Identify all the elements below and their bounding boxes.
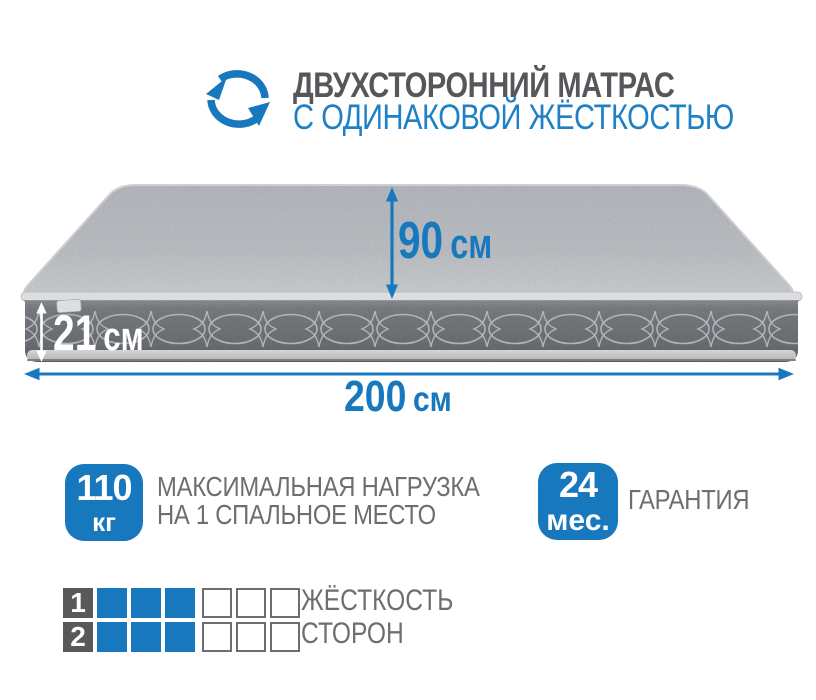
dimension-width-unit: см xyxy=(413,380,452,419)
dimension-width-value: 200 xyxy=(344,372,406,421)
max-load-label: МАКСИМАЛЬНАЯ НАГРУЗКА НА 1 СПАЛЬНОЕ МЕСТ… xyxy=(157,473,480,529)
dimension-depth-label: 90см xyxy=(398,215,492,267)
hardness-cell-filled xyxy=(165,622,195,652)
warranty-value: 24 xyxy=(559,467,597,503)
max-load-label-line1: МАКСИМАЛЬНАЯ НАГРУЗКА xyxy=(157,473,480,501)
hardness-label: ЖЁСТКОСТЬ СТОРОН xyxy=(301,584,453,650)
hardness-cell-filled xyxy=(131,588,161,618)
page-subtitle: С ОДИНАКОВОЙ ЖЁСТКОСТЬЮ xyxy=(293,100,734,135)
hardness-side-number: 2 xyxy=(63,622,93,652)
hardness-side-number: 1 xyxy=(63,588,93,618)
max-load-unit: кг xyxy=(92,509,116,535)
hardness-label-line2: СТОРОН xyxy=(301,617,453,650)
hardness-row: 1 xyxy=(63,588,300,618)
dimension-height-label: 21см xyxy=(53,308,144,358)
mattress-piping xyxy=(21,292,802,301)
dimension-depth-unit: см xyxy=(450,220,492,267)
hardness-cell-empty xyxy=(236,588,266,618)
hardness-cell-empty xyxy=(270,588,300,618)
mattress-image xyxy=(0,160,816,410)
hardness-cell-empty xyxy=(236,622,266,652)
hardness-label-line1: ЖЁСТКОСТЬ xyxy=(301,584,453,617)
hardness-cell-filled xyxy=(97,622,127,652)
hardness-cell-filled xyxy=(131,622,161,652)
dimension-depth-value: 90 xyxy=(398,212,443,270)
max-load-badge: 110 кг xyxy=(65,464,143,541)
mattress-infographic: ДВУХСТОРОННИЙ МАТРАС С ОДИНАКОВОЙ ЖЁСТКО… xyxy=(0,0,816,700)
warranty-label-text: ГАРАНТИЯ xyxy=(628,486,749,514)
max-load-value: 110 xyxy=(76,470,131,506)
warranty-label: ГАРАНТИЯ xyxy=(628,486,749,514)
dimension-width-label: 200см xyxy=(344,375,452,419)
dimension-height-value: 21 xyxy=(53,305,96,361)
rotate-arrows-icon xyxy=(202,68,274,130)
hardness-cell-filled xyxy=(165,588,195,618)
hardness-cell-empty xyxy=(270,622,300,652)
hardness-cell-empty xyxy=(202,588,232,618)
hardness-row: 2 xyxy=(63,622,300,652)
hardness-cell-empty xyxy=(202,622,232,652)
warranty-badge: 24 мес. xyxy=(538,463,618,540)
dimension-height-unit: см xyxy=(103,315,143,359)
max-load-label-line2: НА 1 СПАЛЬНОЕ МЕСТО xyxy=(157,501,480,529)
warranty-unit: мес. xyxy=(546,506,610,536)
hardness-cell-filled xyxy=(97,588,127,618)
